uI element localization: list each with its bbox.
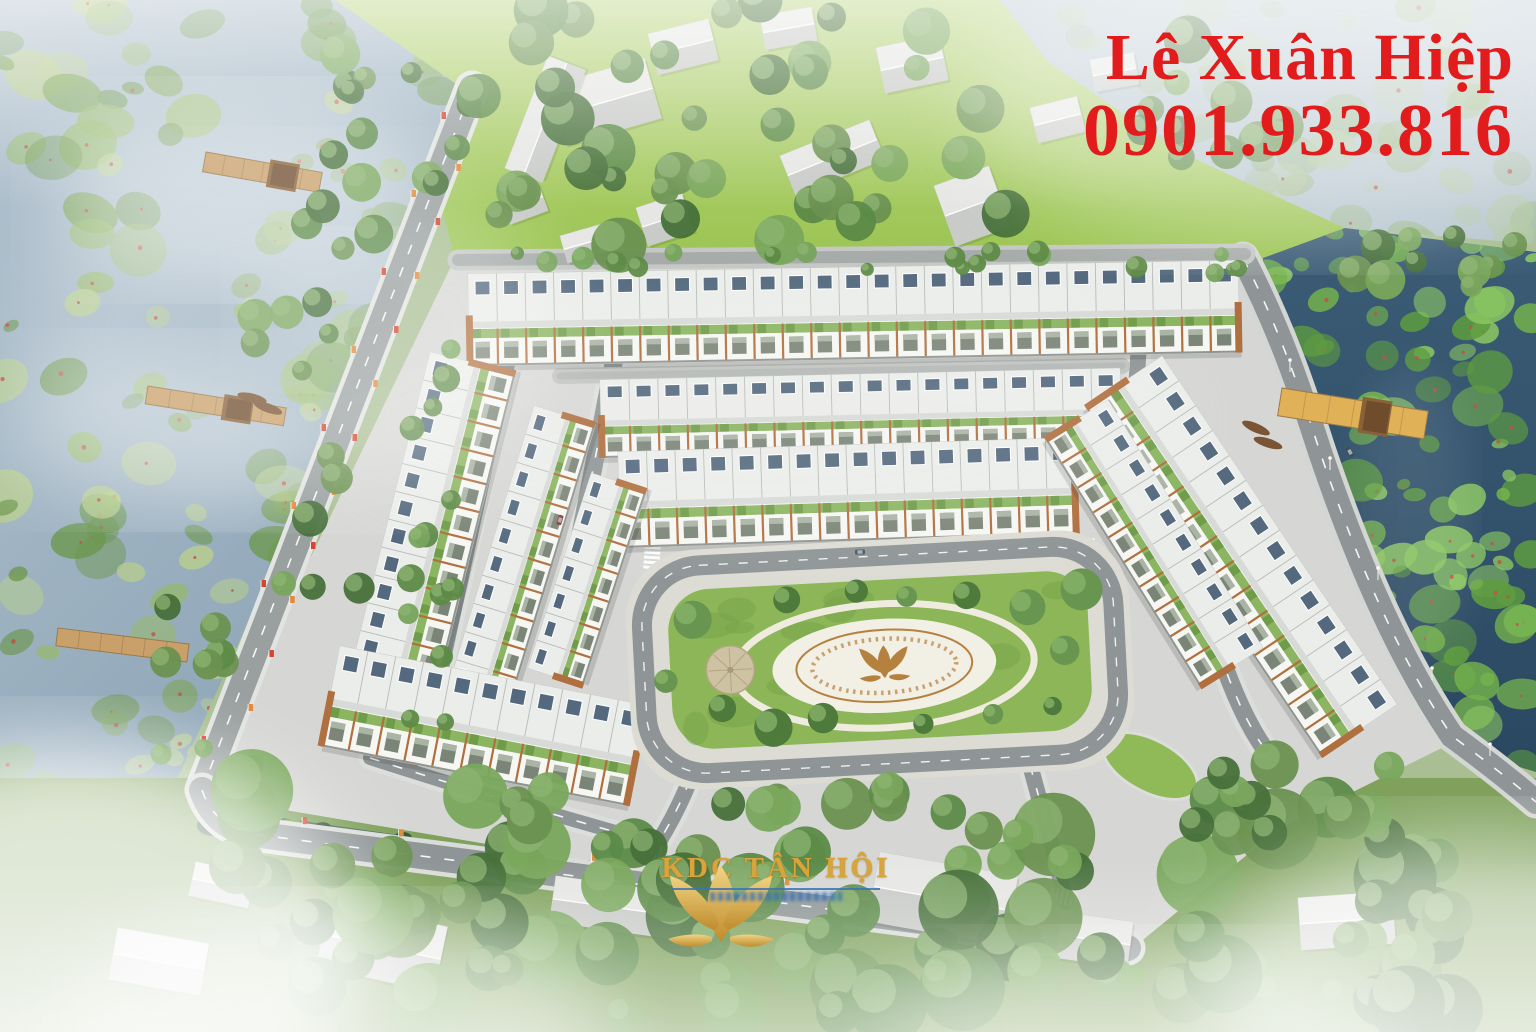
tree	[1405, 251, 1427, 273]
tree	[1214, 247, 1229, 262]
tree	[430, 645, 453, 668]
project-logo: KDC TÂN HỘI	[646, 852, 906, 901]
tree	[606, 252, 627, 273]
lotus-flower	[1473, 404, 1477, 408]
lotus-flower	[1461, 351, 1465, 355]
lotus-flower	[1383, 356, 1387, 360]
tree	[150, 646, 181, 677]
tree	[194, 739, 213, 758]
car	[855, 549, 865, 555]
tree	[507, 799, 553, 845]
tree	[408, 527, 430, 549]
tree	[1374, 752, 1404, 782]
lotus-flower	[1324, 298, 1328, 302]
tree	[1126, 256, 1148, 278]
tree	[1207, 757, 1240, 790]
tree	[968, 255, 986, 273]
tree	[711, 787, 745, 821]
tree	[1460, 275, 1482, 297]
lotus-flower	[114, 723, 118, 727]
lotus-icon	[646, 852, 796, 952]
tree	[1003, 819, 1034, 850]
tree	[398, 603, 419, 624]
lotus-flower	[178, 692, 182, 696]
tree	[397, 564, 425, 592]
tree	[154, 594, 181, 621]
tree	[796, 242, 817, 263]
tree	[437, 713, 454, 730]
tree	[861, 263, 874, 276]
tree	[745, 786, 791, 832]
lotus-flower	[1415, 356, 1419, 360]
tree	[344, 573, 375, 604]
tree	[665, 244, 683, 262]
lotus-flower	[1519, 695, 1522, 698]
lotus-flower	[1469, 326, 1473, 330]
tree	[965, 811, 1003, 849]
lotus-flower	[0, 377, 4, 381]
tree	[1230, 260, 1247, 277]
lotus-flower	[1509, 426, 1513, 430]
tree	[1206, 263, 1225, 282]
lotus-flower	[1471, 554, 1474, 557]
agent-name: Lê Xuân Hiệp	[1083, 24, 1514, 93]
lotus-flower	[6, 323, 10, 327]
lotus-flower	[151, 632, 155, 636]
tree	[1502, 232, 1527, 257]
tree	[1179, 807, 1214, 842]
agent-phone: 0901.933.816	[1083, 93, 1514, 170]
tree	[1251, 740, 1299, 788]
tree	[271, 571, 296, 596]
tree	[1324, 793, 1370, 839]
lily-patch	[102, 711, 128, 736]
tree	[764, 247, 781, 264]
lotus-flower	[1374, 312, 1377, 315]
tree	[944, 247, 965, 268]
aerial-render-screenshot: Lê Xuân Hiệp 0901.933.816 KDC TÂN HỘI	[0, 0, 1536, 1032]
lotus-flower	[1516, 623, 1519, 626]
tree	[821, 778, 873, 830]
tree	[300, 574, 326, 600]
tree	[1365, 260, 1405, 300]
lotus-flower	[178, 742, 182, 746]
tree	[1252, 815, 1288, 851]
tree	[443, 764, 508, 829]
tree	[441, 577, 464, 600]
lotus-flower	[1497, 560, 1501, 564]
tree	[875, 772, 903, 800]
agent-contact-overlay: Lê Xuân Hiệp 0901.933.816	[1083, 24, 1514, 170]
lotus-flower	[1507, 595, 1510, 598]
lotus-flower	[231, 589, 234, 592]
lotus-flower	[1490, 542, 1493, 545]
tree	[572, 247, 595, 270]
tree	[193, 649, 223, 679]
tree	[401, 710, 419, 728]
central-park	[622, 527, 1138, 793]
tree	[1027, 241, 1049, 263]
logo-divider	[672, 888, 880, 890]
logo-tagline-illegible	[710, 892, 842, 901]
tree	[292, 501, 328, 537]
tree	[628, 257, 648, 277]
lotus-flower	[11, 639, 16, 644]
tree	[200, 612, 231, 643]
lotus-flower	[79, 541, 82, 544]
lotus-flower	[193, 556, 196, 559]
tree	[931, 794, 967, 830]
